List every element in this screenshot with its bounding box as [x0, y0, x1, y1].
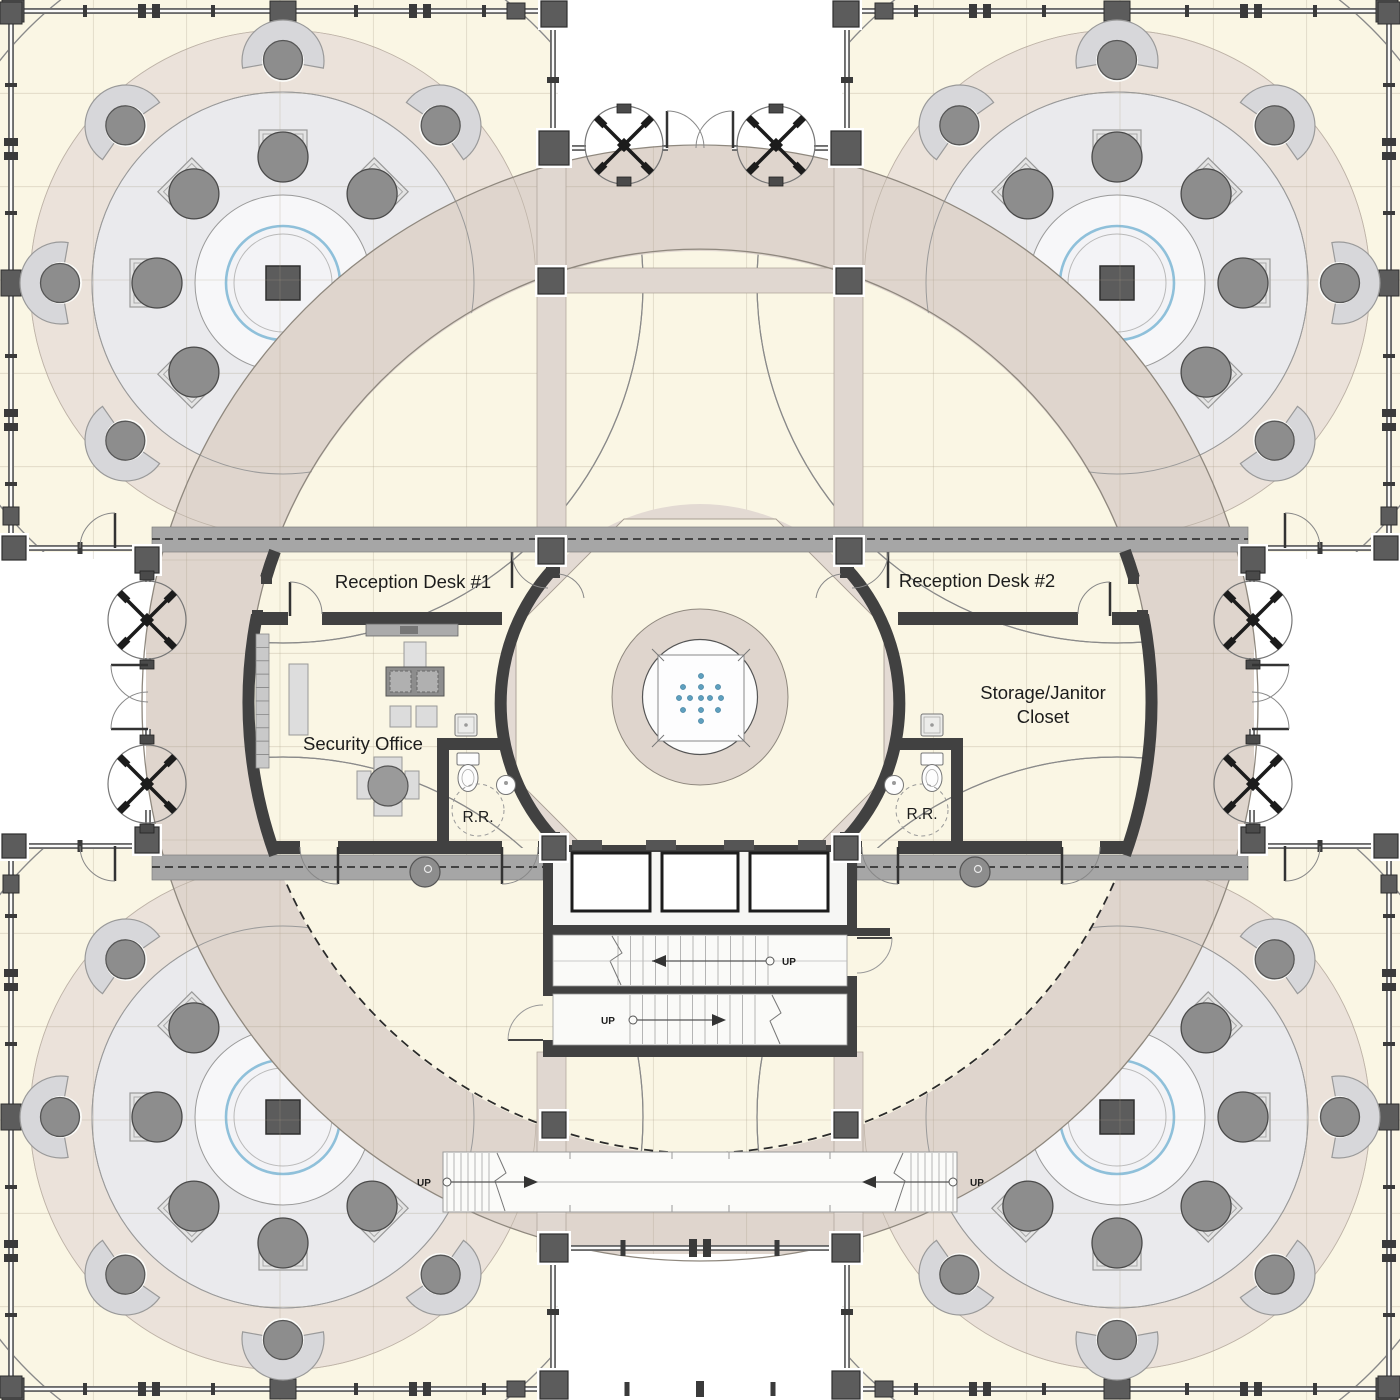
window-mullion [1382, 152, 1396, 160]
window-mullion [1382, 423, 1396, 431]
window-mullion [5, 83, 17, 87]
window-mullion [1042, 1383, 1046, 1395]
label-up-grand-right: UP [970, 1178, 984, 1189]
direction-start-circle [766, 957, 774, 965]
water-jet-dot [715, 707, 720, 712]
locker-shelf [256, 688, 269, 701]
window-mullion [4, 1240, 18, 1248]
door-stop-pad [140, 735, 154, 744]
interior-wall [437, 738, 508, 750]
window-mullion [409, 1382, 417, 1396]
side-table [404, 642, 426, 667]
overhead-bridge-strip [542, 268, 858, 293]
window-mullion [211, 5, 215, 17]
structural-column [834, 1112, 858, 1138]
window-mullion [1381, 507, 1397, 525]
window-mullion [354, 1383, 358, 1395]
window-mullion [1383, 1185, 1395, 1189]
window-mullion [1382, 1240, 1396, 1248]
lounge-table [258, 1218, 308, 1270]
interior-wall [951, 750, 963, 854]
window-mullion [689, 1239, 697, 1257]
window-mullion [1379, 270, 1399, 296]
toilet-bowl [922, 765, 942, 792]
desk-chair [417, 671, 438, 692]
toilet-tank [457, 753, 479, 765]
reception-counter-unit [400, 626, 418, 634]
door-stop-pad [140, 824, 154, 833]
structural-column [832, 1371, 860, 1399]
structural-column [542, 836, 566, 860]
window-mullion [0, 2, 22, 24]
window-mullion [1383, 1042, 1395, 1046]
floor-plan-canvas: Reception Desk #1 Reception Desk #2 Secu… [0, 0, 1400, 1400]
window-mullion [983, 4, 991, 18]
door-stop-pad [617, 104, 631, 113]
interior-wall [1100, 841, 1127, 854]
window-mullion [507, 3, 525, 19]
window-mullion [983, 1382, 991, 1396]
corridor-strip [537, 150, 566, 553]
window-mullion [482, 5, 486, 17]
lounge-seat [1218, 1092, 1268, 1142]
lounge-seat [132, 1092, 182, 1142]
window-mullion [1313, 1383, 1317, 1395]
center-column [1100, 1100, 1134, 1134]
lounge-seat [1092, 132, 1142, 182]
elevator-door-jamb [798, 840, 826, 850]
window-mullion [5, 1185, 17, 1189]
window-mullion [152, 4, 160, 18]
water-jet-dot [698, 718, 703, 723]
window-mullion [1, 1104, 21, 1130]
window-mullion [0, 1376, 22, 1398]
window-mullion [83, 1383, 87, 1395]
window-mullion [1104, 1379, 1130, 1399]
window-mullion [409, 4, 417, 18]
water-jet-dot [687, 695, 692, 700]
window-mullion [354, 5, 358, 17]
label-security-office: Security Office [303, 733, 423, 754]
window-mullion [4, 983, 18, 991]
interior-wall [256, 612, 288, 625]
locker-shelf [256, 647, 269, 660]
window-mullion [969, 4, 977, 18]
window-mullion [775, 1240, 780, 1256]
window-mullion [1185, 1383, 1189, 1395]
window-mullion [5, 914, 17, 918]
window-mullion [771, 1382, 776, 1396]
window-mullion [1383, 914, 1395, 918]
window-mullion [211, 1383, 215, 1395]
grand-staircase [443, 1152, 957, 1212]
window-mullion [423, 4, 431, 18]
core-bottom-wall [543, 1045, 857, 1057]
window-mullion [625, 1382, 630, 1396]
label-restroom-left: R.R. [463, 809, 494, 826]
window-mullion [1104, 1, 1130, 21]
water-jet-dot [707, 695, 712, 700]
window-mullion [5, 1042, 17, 1046]
window-mullion [1383, 1313, 1395, 1317]
window-mullion [969, 1382, 977, 1396]
label-up-core-flight1: UP [782, 957, 796, 968]
door-jamb-block [261, 573, 272, 584]
window-mullion [1185, 5, 1189, 17]
window-mullion [875, 3, 893, 19]
door-jamb-block [1128, 573, 1139, 584]
interior-wall [898, 841, 1062, 854]
label-reception-desk-1: Reception Desk #1 [335, 571, 491, 592]
locker-shelf [256, 728, 269, 741]
center-column [266, 1100, 300, 1134]
locker-shelf [256, 674, 269, 687]
sink-drain [464, 723, 468, 727]
locker-shelf [256, 661, 269, 674]
door-jamb-block [546, 566, 560, 578]
lounge-seat [258, 132, 308, 182]
fan-seat-cushion [41, 264, 80, 303]
lounge-seat [1218, 258, 1268, 308]
structural-column [542, 1112, 566, 1138]
door-stop-pad [1246, 735, 1260, 744]
interior-wall [338, 841, 502, 854]
window-mullion [1240, 1382, 1248, 1396]
label-storage-janitor-line1: Storage/Janitor [980, 682, 1105, 703]
structural-column [1374, 834, 1398, 858]
label-restroom-right: R.R. [907, 806, 938, 823]
guest-chair [416, 706, 437, 727]
window-mullion [1, 270, 21, 296]
locker-shelf [256, 714, 269, 727]
window-mullion [4, 969, 18, 977]
window-mullion [4, 1254, 18, 1262]
fan-seat-cushion [264, 41, 303, 80]
lounge-seat [258, 1218, 308, 1268]
window-mullion [270, 1379, 296, 1399]
lounge-table [1218, 258, 1270, 308]
window-mullion [1383, 354, 1395, 358]
window-mullion [914, 5, 918, 17]
door-stop-pad [140, 571, 154, 580]
direction-start-circle [949, 1178, 957, 1186]
label-up-core-flight2: UP [601, 1016, 615, 1027]
window-mullion [4, 423, 18, 431]
window-mullion [1382, 409, 1396, 417]
structural-column [836, 268, 862, 294]
window-mullion [270, 1, 296, 21]
window-mullion [3, 507, 19, 525]
window-mullion [4, 152, 18, 160]
window-mullion [1254, 4, 1262, 18]
fan-seat-cushion [1098, 1321, 1137, 1360]
structural-column [2, 834, 26, 858]
core-exterior-stub [857, 928, 890, 936]
door-stop-pad [769, 177, 783, 186]
window-mullion [1383, 83, 1395, 87]
water-jet-dot [680, 684, 685, 689]
window-mullion [5, 1313, 17, 1317]
window-mullion [841, 1309, 853, 1315]
interior-wall [1112, 612, 1144, 625]
structural-column [541, 1, 567, 27]
water-jet-dot [676, 695, 681, 700]
fan-seat-cushion [1321, 264, 1360, 303]
interior-wall [437, 750, 449, 854]
window-mullion [1240, 4, 1248, 18]
elevator-cell [750, 853, 828, 911]
entry-recess-exterior [558, 1254, 842, 1400]
toilet-bowl [458, 765, 478, 792]
structural-column [540, 1234, 568, 1262]
guest-chair [390, 706, 411, 727]
window-mullion [138, 1382, 146, 1396]
window-mullion [1381, 875, 1397, 893]
elevator-door-jamb [724, 840, 754, 850]
window-mullion [138, 4, 146, 18]
structural-column [1374, 536, 1398, 560]
corridor-strip [834, 150, 863, 553]
lounge-seat [132, 258, 182, 308]
window-mullion [1379, 1104, 1399, 1130]
interior-wall [322, 612, 502, 625]
window-mullion [3, 875, 19, 893]
window-mullion [1313, 5, 1317, 17]
elevator-cell [572, 853, 650, 911]
door-stop-pad [1246, 571, 1260, 580]
locker-shelf [256, 701, 269, 714]
planter [410, 857, 440, 887]
window-mullion [703, 1239, 711, 1257]
window-mullion [1383, 211, 1395, 215]
fan-seat-cushion [264, 1321, 303, 1360]
core-mid-wall [543, 986, 857, 994]
structural-column [1241, 547, 1265, 573]
window-mullion [4, 409, 18, 417]
window-mullion [482, 1383, 486, 1395]
structural-column [831, 131, 861, 165]
structural-column [832, 1234, 860, 1262]
window-mullion [5, 482, 17, 486]
lounge-table [258, 130, 308, 182]
window-mullion [1382, 1254, 1396, 1262]
structural-column [2, 536, 26, 560]
center-column [266, 266, 300, 300]
structural-column [135, 547, 159, 573]
label-storage-janitor-line2: Closet [1017, 706, 1069, 727]
window-mullion [1042, 5, 1046, 17]
direction-start-circle [443, 1178, 451, 1186]
window-mullion [507, 1381, 525, 1397]
structural-column [836, 538, 862, 564]
sink-drain [892, 781, 896, 785]
lounge-table [130, 1092, 182, 1142]
window-mullion [1254, 1382, 1262, 1396]
window-mullion [1382, 969, 1396, 977]
fan-seat-cushion [41, 1098, 80, 1137]
window-mullion [5, 211, 17, 215]
window-mullion [1382, 983, 1396, 991]
window-mullion [4, 138, 18, 146]
window-mullion [547, 1309, 559, 1315]
window-mullion [621, 1240, 626, 1256]
water-jet-dot [698, 684, 703, 689]
lounge-table [1218, 1092, 1270, 1142]
center-column [1100, 266, 1134, 300]
door-stop-pad [617, 177, 631, 186]
core-left-wall [543, 845, 553, 996]
interior-wall [898, 612, 1078, 625]
interior-wall [273, 841, 300, 854]
sink-drain [930, 723, 934, 727]
window-mullion [423, 1382, 431, 1396]
window-mullion [1378, 1376, 1400, 1398]
elevator-stair-core [508, 840, 892, 1057]
planter [960, 857, 990, 887]
water-jet-dot [715, 684, 720, 689]
toilet-tank [921, 753, 943, 765]
lounge-table [1092, 130, 1142, 182]
lounge-table [130, 258, 182, 308]
fan-seat-cushion [1321, 1098, 1360, 1137]
water-jet-dot [698, 707, 703, 712]
window-mullion [83, 5, 87, 17]
structural-column [538, 268, 564, 294]
locker-shelf [256, 634, 269, 647]
label-reception-desk-2: Reception Desk #2 [899, 570, 1055, 591]
cabinet [289, 664, 308, 735]
desk-chair [390, 671, 411, 692]
window-mullion [152, 1382, 160, 1396]
door-stop-pad [769, 104, 783, 113]
window-mullion [1382, 138, 1396, 146]
window-mullion [5, 354, 17, 358]
core-mid-wall [543, 925, 857, 935]
elevator-door-jamb [572, 840, 602, 850]
lounge-table [1092, 1218, 1142, 1270]
window-mullion [914, 1383, 918, 1395]
structural-column [539, 131, 569, 165]
window-mullion [1378, 2, 1400, 24]
window-mullion [841, 77, 853, 83]
water-jet-dot [718, 695, 723, 700]
sink-drain [504, 781, 508, 785]
locker-shelf [256, 741, 269, 754]
water-jet-dot [698, 695, 703, 700]
direction-start-circle [629, 1016, 637, 1024]
window-mullion [875, 1381, 893, 1397]
label-up-grand-left: UP [417, 1178, 431, 1189]
lounge-seat [1092, 1218, 1142, 1268]
structural-column [540, 1371, 568, 1399]
structural-column [538, 538, 564, 564]
window-mullion [696, 1381, 704, 1397]
door-stop-pad [1246, 824, 1260, 833]
fan-seat-cushion [1098, 41, 1137, 80]
structural-column [833, 1, 859, 27]
water-jet-dot [680, 707, 685, 712]
window-mullion [1383, 482, 1395, 486]
round-table [368, 766, 408, 806]
water-jet-dot [698, 673, 703, 678]
window-mullion [547, 77, 559, 83]
door-jamb-block [840, 566, 854, 578]
elevator-door-jamb [646, 840, 676, 850]
elevator-cell [662, 853, 738, 911]
locker-shelf [256, 755, 269, 768]
interior-wall [892, 738, 963, 750]
structural-column [834, 836, 858, 860]
